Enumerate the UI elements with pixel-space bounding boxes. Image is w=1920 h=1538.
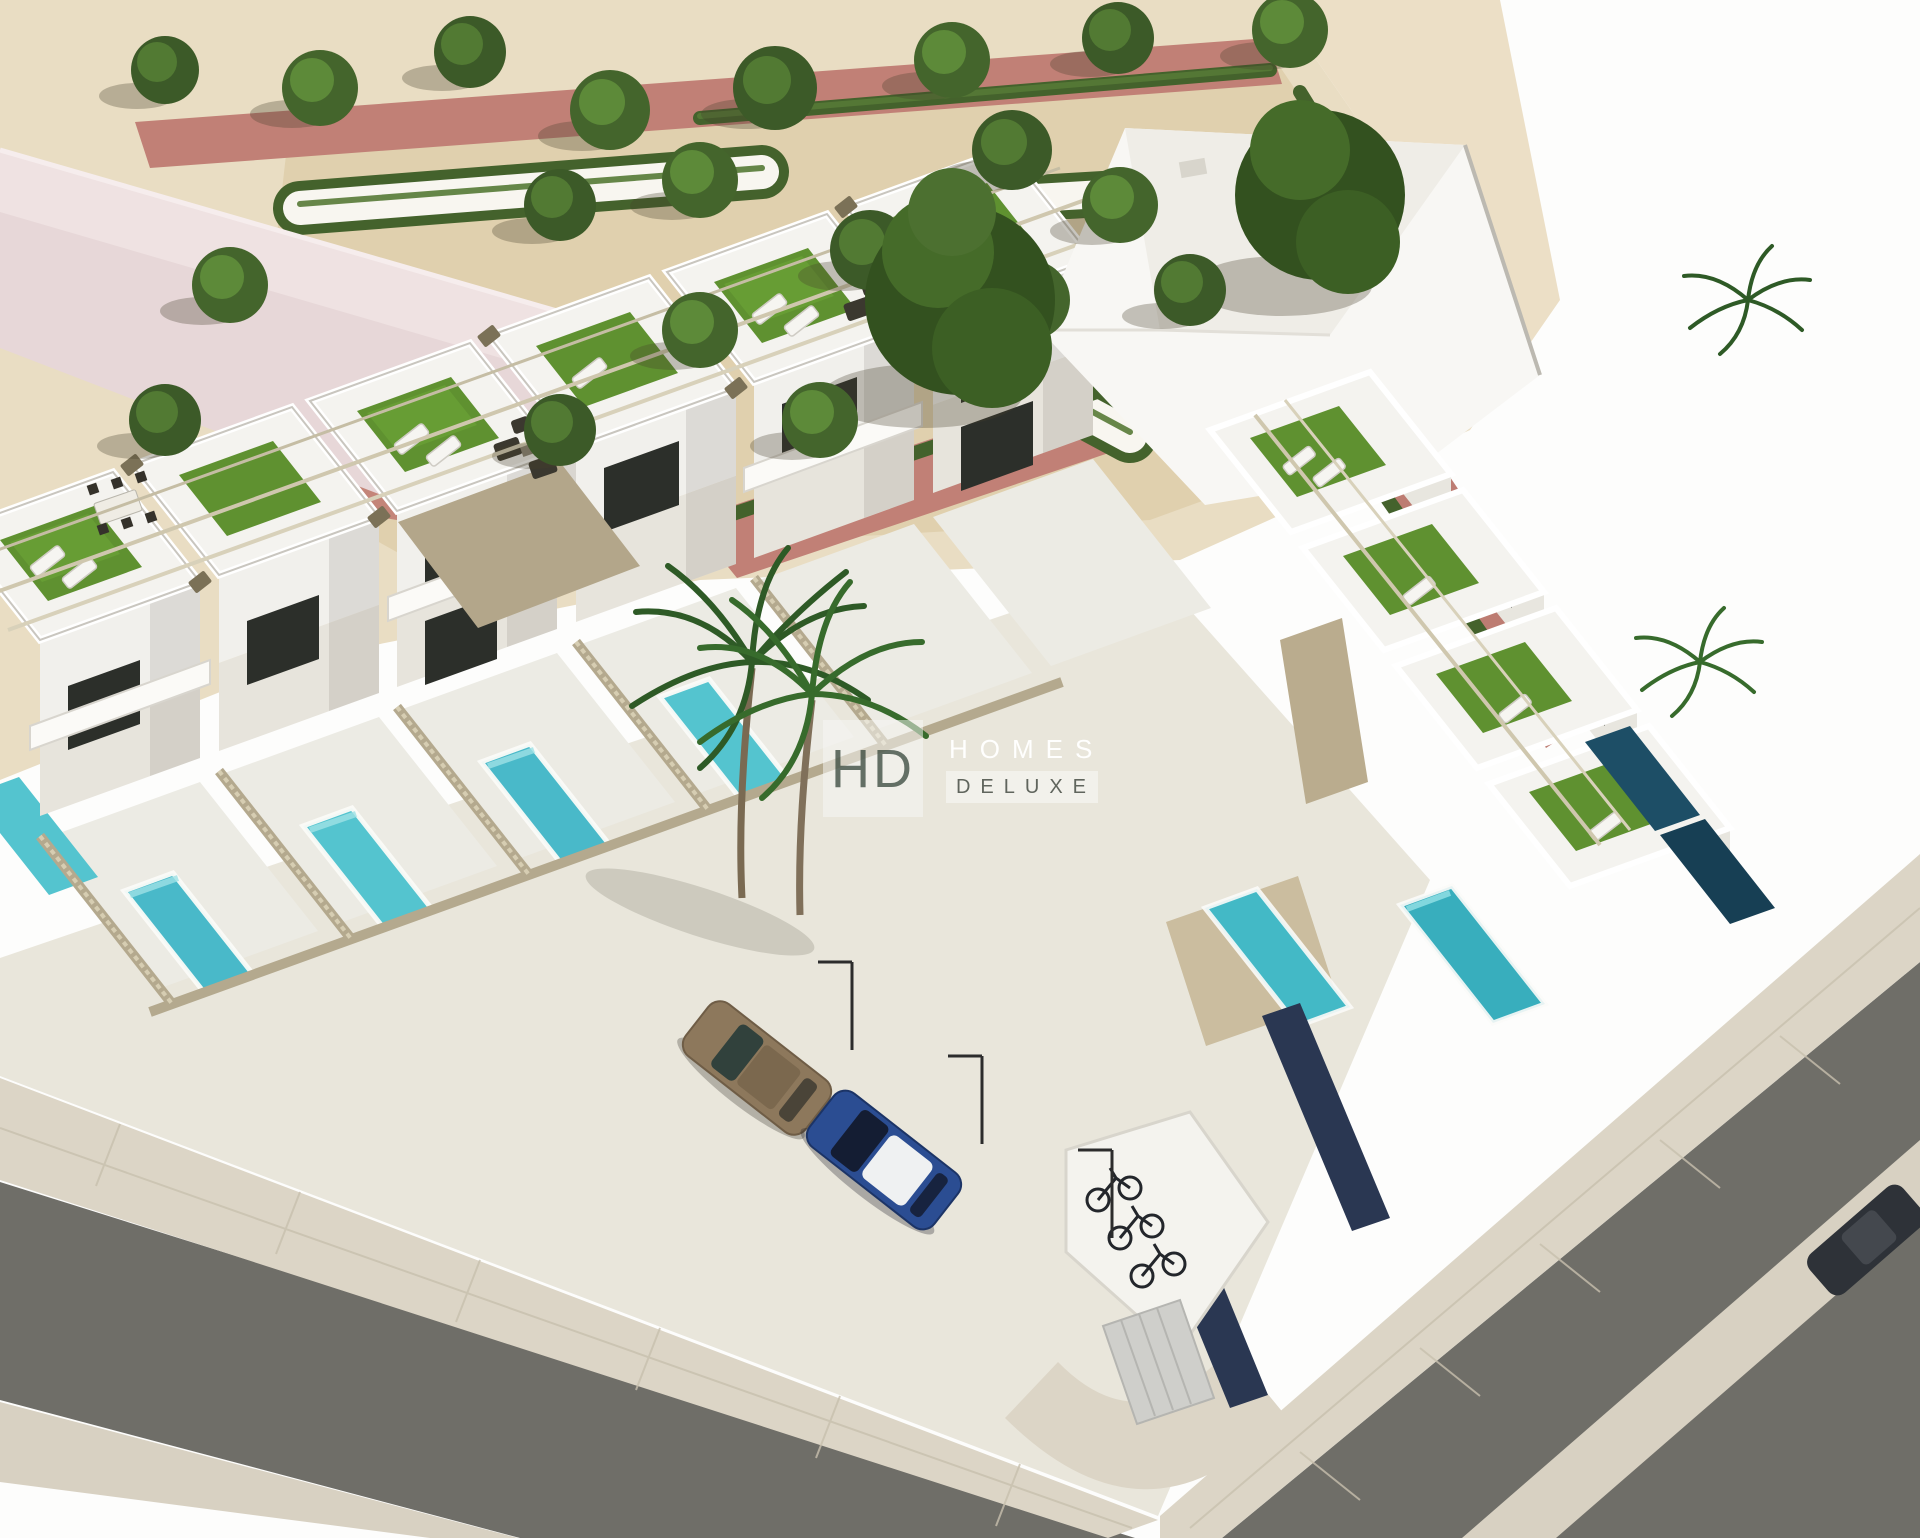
render-scene: HD HOMES DELUXE (0, 0, 1920, 1538)
palm-small-right-mid (1636, 608, 1762, 716)
scene-canvas (0, 0, 1920, 1538)
palm-small-right-top (1684, 246, 1810, 354)
